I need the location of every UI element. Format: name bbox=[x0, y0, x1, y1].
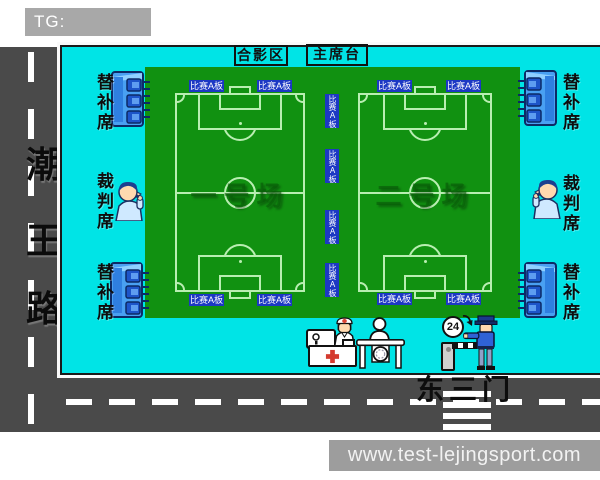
ad-board: 比赛A板 bbox=[257, 294, 292, 306]
penalty-spot bbox=[239, 122, 242, 125]
corner-arc bbox=[177, 282, 185, 290]
corner-arc bbox=[295, 282, 303, 290]
goal-area bbox=[404, 275, 446, 290]
ad-board: 比赛A板 bbox=[446, 293, 481, 305]
corner-arc bbox=[360, 95, 368, 103]
west-road-name-char: 王 bbox=[26, 212, 62, 264]
corner-arc bbox=[482, 95, 490, 103]
referee-label: 裁判席 bbox=[91, 172, 116, 232]
venue-map: TG: MYYJJPP 潮 王 路 东三门 合影区 主席台 bbox=[0, 0, 600, 480]
bench-icon bbox=[516, 261, 558, 319]
corner-arc bbox=[360, 282, 368, 290]
security-guard-icon bbox=[463, 315, 500, 372]
photo-area-label: 合影区 bbox=[234, 45, 288, 66]
red-cross-icon bbox=[325, 349, 340, 364]
ad-board-vertical: 比赛A板 bbox=[325, 210, 339, 244]
ad-board-vertical: 比赛A板 bbox=[325, 263, 339, 297]
field-name-watermark: 二号场 bbox=[372, 176, 478, 213]
ad-board: 比赛A板 bbox=[377, 80, 412, 92]
penalty-spot bbox=[424, 260, 427, 263]
referee-icon bbox=[111, 179, 149, 221]
corner-arc bbox=[295, 95, 303, 103]
bench-icon bbox=[110, 70, 152, 128]
ad-board: 比赛A板 bbox=[446, 80, 481, 92]
field-name-watermark: 一号场 bbox=[187, 176, 293, 213]
goal-box bbox=[229, 86, 251, 94]
goal-box bbox=[229, 291, 251, 299]
bench-icon bbox=[516, 69, 558, 127]
bench-label: 替补席 bbox=[91, 263, 116, 323]
goal-area bbox=[219, 275, 261, 290]
goal-box bbox=[414, 86, 436, 94]
medical-desk-icon bbox=[308, 345, 357, 367]
corner-arc bbox=[177, 95, 185, 103]
ad-board: 比赛A板 bbox=[189, 294, 224, 306]
reception-table-icon bbox=[356, 339, 405, 369]
goal-box bbox=[414, 291, 436, 299]
west-road-name-char: 路 bbox=[26, 280, 62, 332]
ad-board: 比赛A板 bbox=[257, 80, 292, 92]
east-gate-label: 东三门 bbox=[416, 368, 515, 408]
penalty-spot bbox=[424, 122, 427, 125]
goal-area bbox=[404, 95, 446, 110]
ad-board: 比赛A板 bbox=[377, 293, 412, 305]
ad-board-vertical: 比赛A板 bbox=[325, 94, 339, 128]
bench-label: 替补席 bbox=[557, 263, 582, 323]
goal-area bbox=[219, 95, 261, 110]
south-road-dash-line bbox=[66, 399, 600, 405]
rostrum-label: 主席台 bbox=[306, 44, 368, 66]
referee-label: 裁判席 bbox=[557, 174, 582, 234]
ad-board: 比赛A板 bbox=[189, 80, 224, 92]
tg-banner: TG: MYYJJPP bbox=[25, 8, 151, 36]
corner-arc bbox=[482, 282, 490, 290]
watermark-bar: www.test-lejingsport.com bbox=[329, 440, 600, 471]
bench-label: 替补席 bbox=[557, 73, 582, 133]
penalty-spot bbox=[239, 260, 242, 263]
west-road-name-char: 潮 bbox=[26, 136, 62, 188]
ad-board-vertical: 比赛A板 bbox=[325, 149, 339, 183]
bench-label: 替补席 bbox=[91, 73, 116, 133]
